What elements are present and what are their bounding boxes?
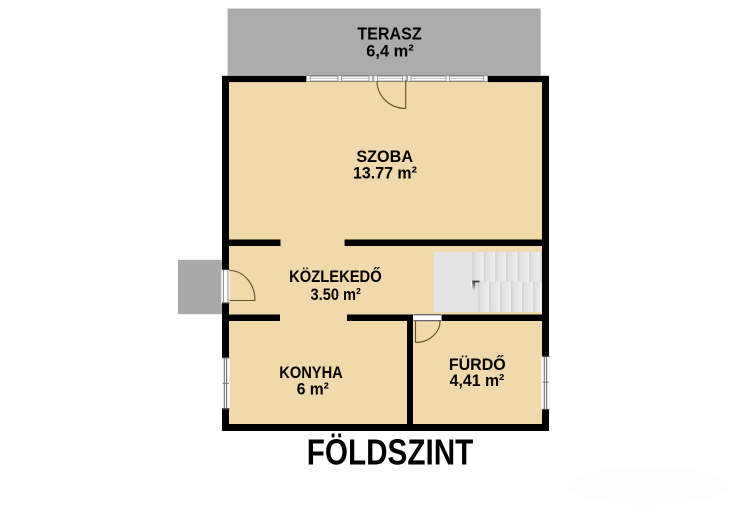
svg-text:4,41 m²: 4,41 m² [450, 371, 505, 390]
svg-text:FÖLDSZINT: FÖLDSZINT [307, 432, 474, 473]
svg-text:3.50 m²: 3.50 m² [311, 285, 362, 304]
svg-text:KÖZLEKEDŐ: KÖZLEKEDŐ [289, 267, 382, 286]
svg-text:6,4 m²: 6,4 m² [366, 41, 414, 60]
svg-text:6 m²: 6 m² [297, 380, 329, 399]
svg-text:13.77 m²: 13.77 m² [353, 163, 417, 182]
svg-text:TERASZ: TERASZ [357, 23, 422, 43]
